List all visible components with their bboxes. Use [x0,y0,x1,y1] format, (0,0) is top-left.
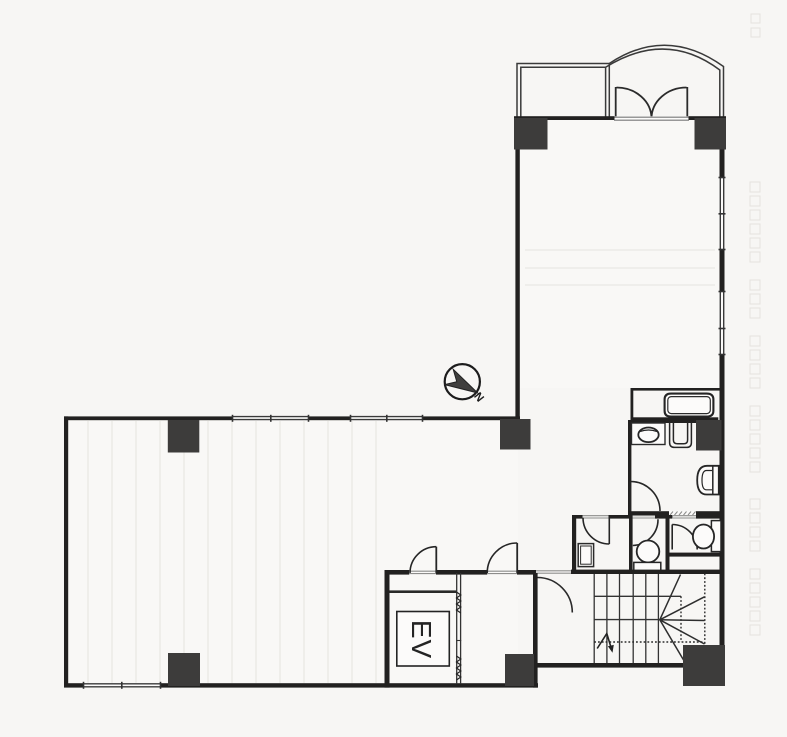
svg-text:EV: EV [406,620,437,659]
